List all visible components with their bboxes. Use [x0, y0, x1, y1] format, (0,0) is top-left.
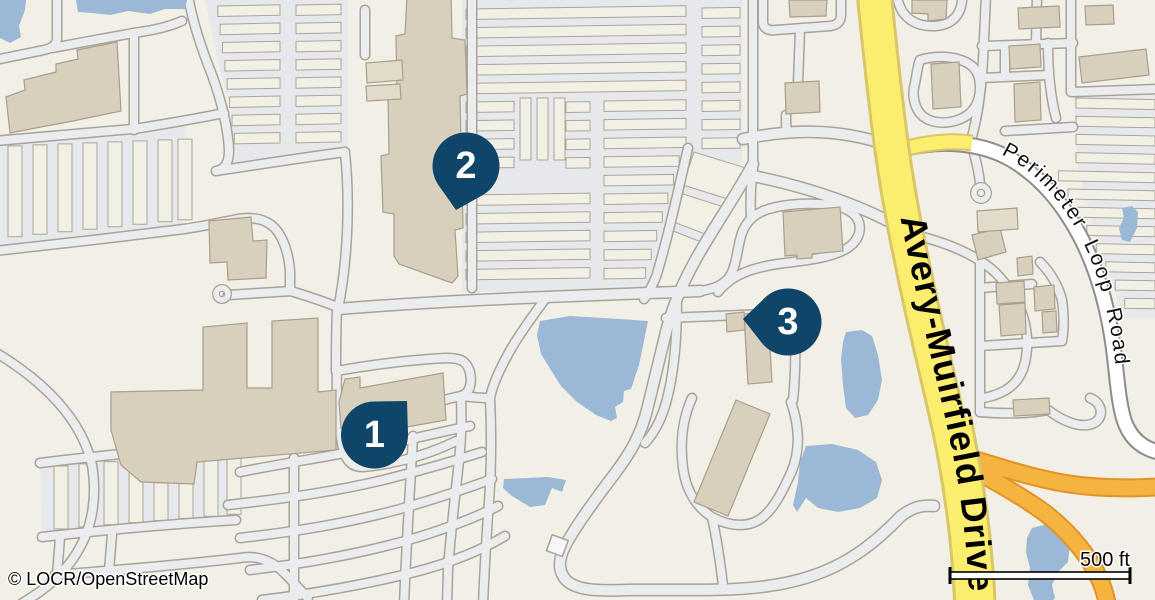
svg-text:2: 2	[455, 145, 476, 187]
svg-text:© LOCR/OpenStreetMap: © LOCR/OpenStreetMap	[8, 569, 208, 589]
svg-text:500 ft: 500 ft	[1080, 549, 1130, 571]
svg-text:3: 3	[777, 301, 798, 343]
svg-text:1: 1	[364, 414, 385, 456]
